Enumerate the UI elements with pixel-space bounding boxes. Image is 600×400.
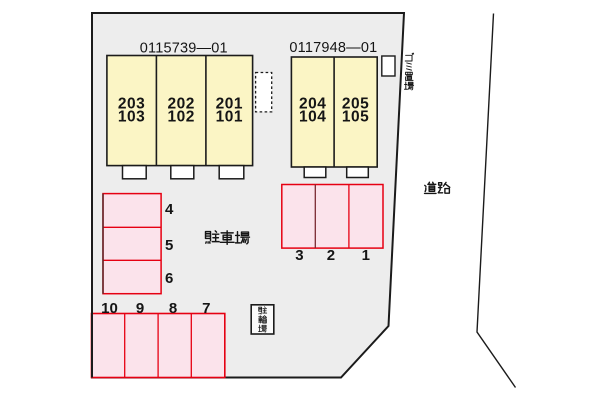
svg-text:5: 5 [165,237,173,254]
svg-text:1: 1 [362,247,370,264]
svg-text:103: 103 [118,109,145,126]
svg-text:105: 105 [342,109,369,126]
svg-text:101: 101 [216,109,243,126]
svg-text:104: 104 [299,109,326,126]
svg-text:3: 3 [295,247,303,264]
svg-text:9: 9 [136,300,144,317]
svg-text:4: 4 [165,201,174,218]
svg-text:0115739—01: 0115739—01 [140,40,228,56]
svg-text:10: 10 [101,300,118,317]
svg-text:6: 6 [165,270,173,287]
svg-text:102: 102 [168,109,195,126]
svg-text:0117948—01: 0117948—01 [289,40,377,56]
svg-text:8: 8 [169,300,177,317]
svg-text:2: 2 [327,247,335,264]
svg-text:7: 7 [202,300,210,317]
